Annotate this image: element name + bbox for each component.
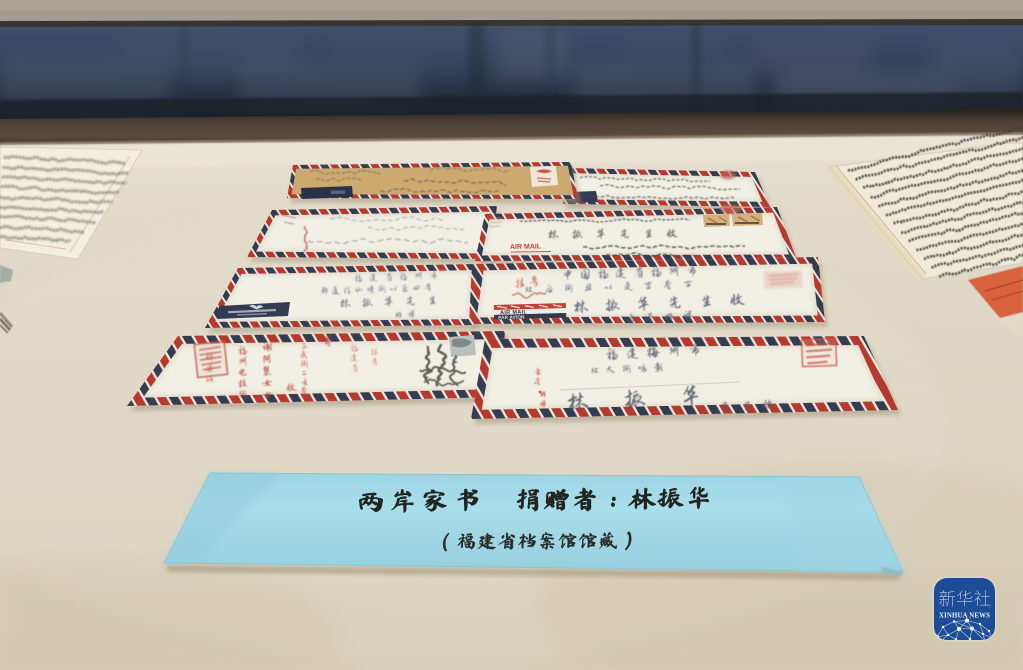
svg-text:PAR AVION: PAR AVION <box>498 314 525 320</box>
svg-text:AIR MAIL: AIR MAIL <box>510 243 542 251</box>
svg-text:XINHUA NEWS: XINHUA NEWS <box>939 613 990 620</box>
